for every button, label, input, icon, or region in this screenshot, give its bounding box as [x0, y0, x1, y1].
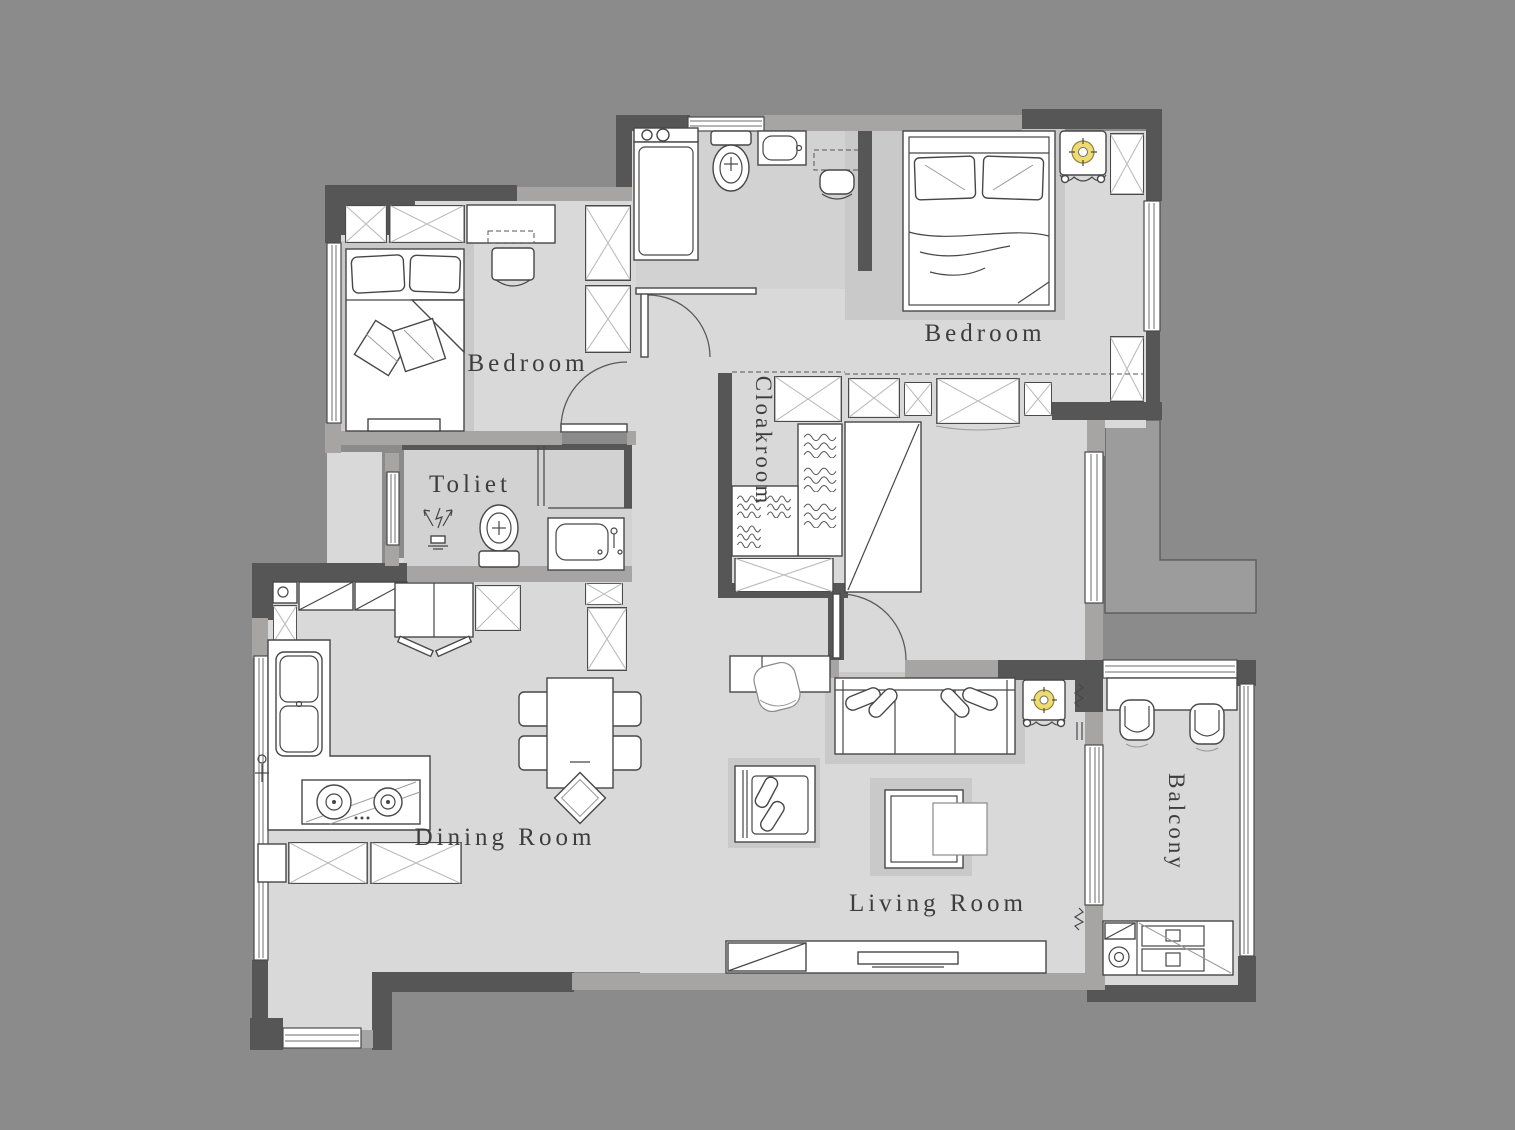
nesting-table-icon: [933, 803, 987, 855]
dining-chair-icon: [609, 692, 641, 726]
dining-table-icon: [547, 678, 613, 788]
base-cabinet-icon: [273, 605, 297, 642]
partition: [636, 288, 756, 294]
tv-bench-icon: [726, 941, 1046, 973]
room-label-balcony: Balcony: [1164, 773, 1189, 871]
side-table-icon: [1023, 680, 1065, 727]
bench-icon: [368, 419, 440, 431]
base-cabinet-icon: [587, 608, 626, 671]
window-icon: [254, 656, 268, 960]
window-icon: [1144, 201, 1160, 331]
room-label-bedroom-right: Bedroom: [924, 320, 1045, 347]
wardrobe-icon: [735, 558, 833, 591]
floor-plan-page: Bedroom Bedroom Toliet Cloakroom Dining …: [0, 0, 1515, 1130]
window-icon: [327, 243, 341, 423]
stove-icon: [302, 780, 420, 824]
window-icon: [283, 1028, 361, 1048]
toilet-icon: [711, 131, 751, 191]
pillow-icon: [409, 255, 460, 293]
window-icon: [387, 472, 399, 545]
nightstand-icon: [1060, 131, 1106, 183]
washer-cabinet-icon: [1103, 921, 1233, 975]
railing-window-icon: [1240, 684, 1254, 956]
pillow-icon: [351, 255, 405, 294]
dining-chair-icon: [519, 736, 551, 770]
vanity-sink-icon: [548, 518, 624, 570]
tv-icon: [858, 952, 958, 964]
tall-cabinet-icon: [585, 286, 630, 353]
balcony-top-window-icon: [1103, 660, 1237, 678]
window-icon: [1085, 452, 1103, 603]
armchair-icon: [735, 766, 815, 842]
base-cabinet-icon: [585, 583, 622, 605]
corner-cabinet-icon: [1110, 337, 1143, 402]
dining-chair-icon: [609, 736, 641, 770]
sofa-icon: [835, 678, 1015, 754]
exterior-shaft: [327, 452, 382, 563]
room-label-bedroom-left: Bedroom: [467, 350, 588, 377]
room-label-cloakroom: Cloakroom: [751, 376, 776, 507]
double-bed-icon: [346, 249, 464, 431]
toilet-icon: [479, 505, 519, 567]
desk-chair-icon: [492, 248, 534, 286]
washing-machine-icon: [634, 128, 698, 260]
double-bed-icon: [903, 131, 1055, 311]
room-label-dining: Dining Room: [415, 824, 596, 851]
stool-icon: [820, 170, 854, 194]
dining-chair-icon: [519, 692, 551, 726]
base-cabinet-icon: [475, 585, 520, 630]
room-label-toilet: Toliet: [429, 471, 511, 498]
sink-icon: [758, 131, 806, 165]
floor-plan-canvas: Bedroom Bedroom Toliet Cloakroom Dining …: [0, 0, 1515, 1130]
wardrobe-icon: [775, 376, 842, 421]
wardrobe-icon: [345, 205, 386, 242]
clothes-shelf-icon: [798, 424, 842, 556]
room-label-living: Living Room: [849, 890, 1027, 917]
window-icon: [688, 117, 764, 131]
tall-cabinet-icon: [585, 206, 630, 280]
kitchen-sink-icon: [276, 652, 322, 756]
mirror-cabinet-icon: [845, 422, 921, 592]
wardrobe-icon: [390, 205, 464, 242]
corner-cabinet-icon: [1110, 134, 1143, 195]
dresser-icon: [467, 205, 555, 243]
